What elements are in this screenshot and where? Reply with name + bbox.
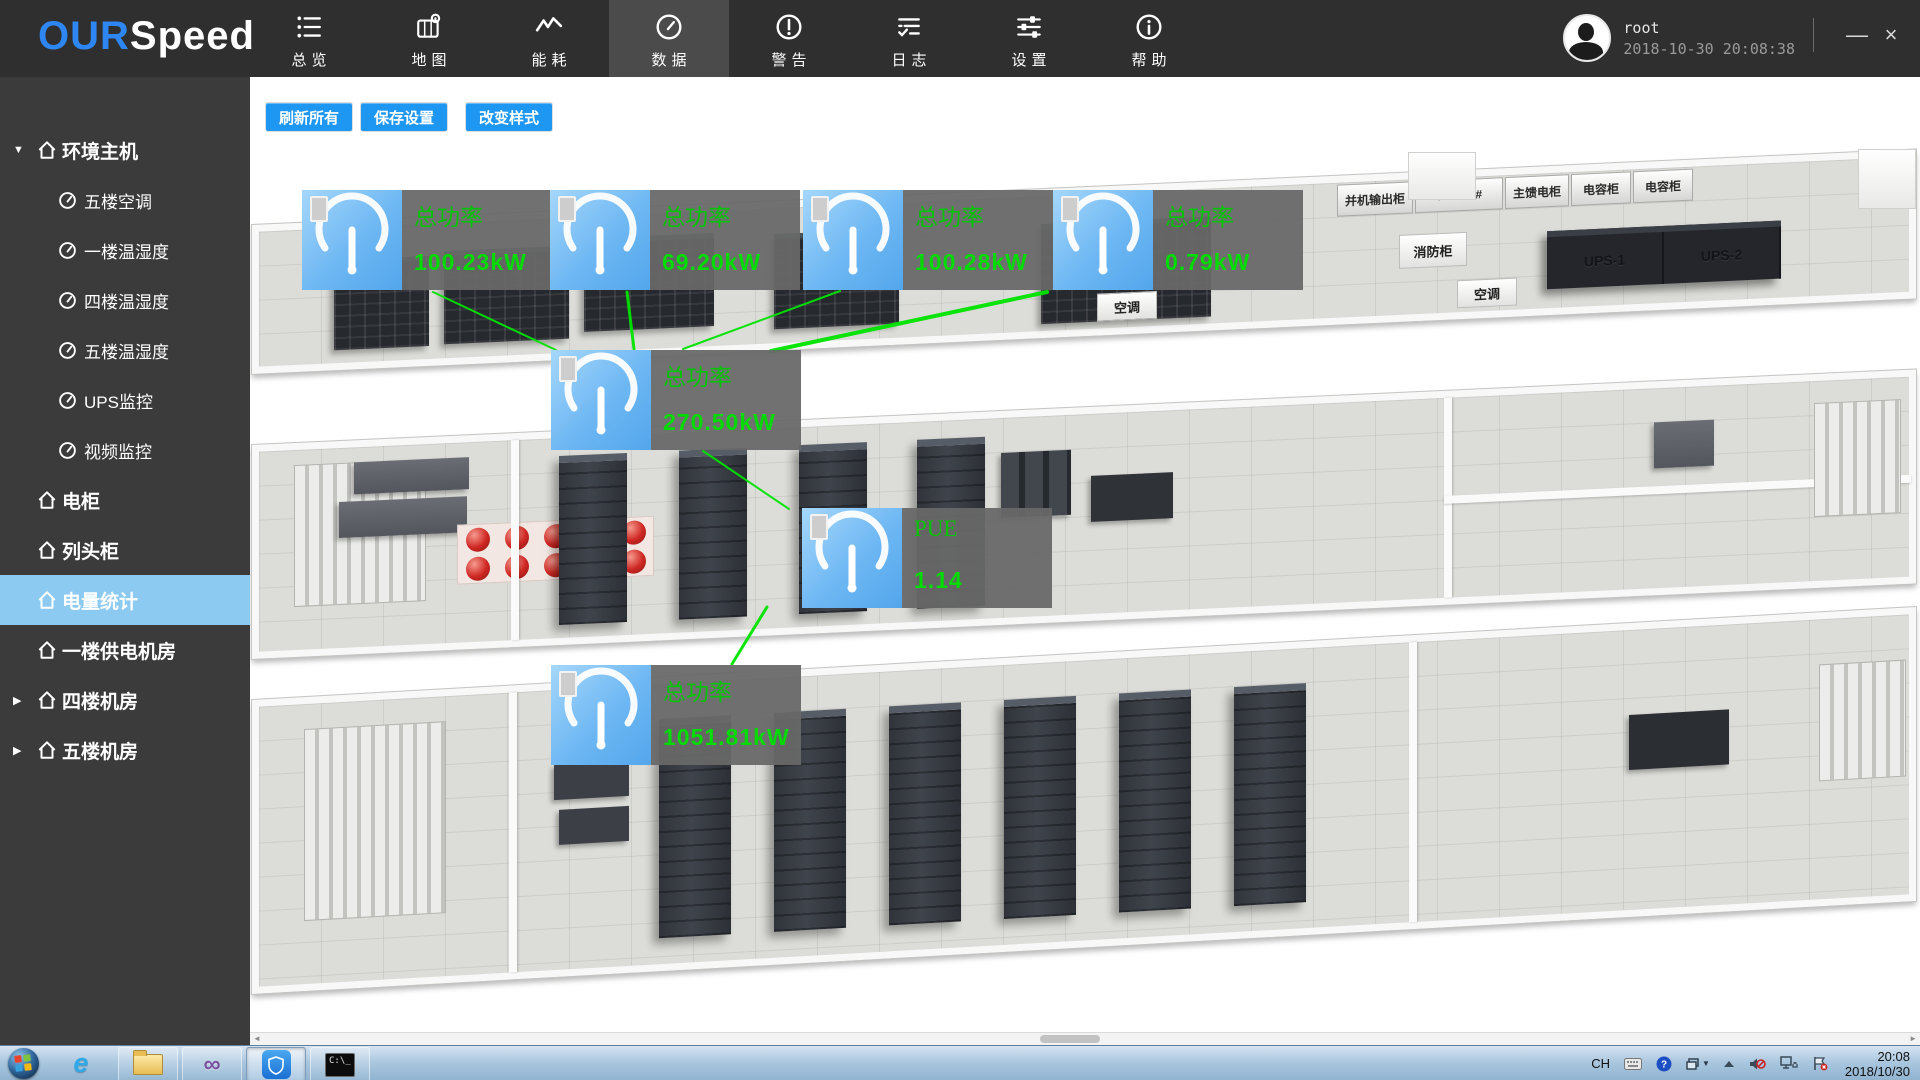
taskbar-item-file-explorer[interactable] [118,1047,178,1080]
server-rack-row [1234,683,1306,906]
internet-explorer-icon: e [73,1048,88,1079]
main-content: 刷新所有 保存设置 改变样式 并机输出柜 800A-1# 主馈电柜 电容柜 电容… [250,77,1920,1045]
action-center-flag-icon[interactable] [1812,1056,1828,1071]
scroll-left-icon[interactable]: ◄ [253,1034,261,1043]
svg-text:?: ? [1661,1059,1667,1070]
equipment-box [1629,709,1729,770]
clock-date: 2018/10/30 [1845,1064,1910,1079]
gauge-checkbox[interactable] [1061,196,1079,222]
partition-wall [1409,642,1417,922]
server-rack-row [559,453,627,625]
sidebar-item-5f-room[interactable]: ▶ 五楼机房 [0,725,250,775]
clock-time: 20:08 [1845,1049,1910,1064]
windows-logo-icon [14,1054,32,1072]
gauge-readout: 总功率 0.79kW [1153,190,1303,290]
sidebar: ▼ 环境主机 五楼空调 一楼温湿度 四楼温湿度 五楼温湿度 UPS监控 视频监控 [0,77,250,1045]
tab-label: 日志 [849,49,969,70]
windows-taskbar: e ∞ C:\_ CH ? ▼ [0,1045,1920,1080]
gauge-tile-icon [1053,190,1153,290]
alert-icon [775,13,803,41]
sidebar-item-env-host[interactable]: ▼ 环境主机 [0,125,250,175]
top-navbar: OURSpeed 总览 地图 能耗 数据 警告 日志 设置 [0,0,1920,77]
command-prompt-icon: C:\_ [325,1053,355,1077]
cabinet-label-row: 并机输出柜 800A-1# 主馈电柜 电容柜 电容柜 [1337,168,1695,216]
sidebar-item-power-cabinet[interactable]: 电柜 [0,475,250,525]
taskbar-clock[interactable]: 20:08 2018/10/30 [1845,1049,1910,1079]
sidebar-item-1f-power-room[interactable]: 一楼供电机房 [0,625,250,675]
sidebar-item-5f-ac[interactable]: 五楼空调 [0,175,250,225]
server-rack-row [679,448,747,620]
caret-right-icon[interactable]: ▶ [13,694,21,707]
wall-beam [1858,149,1916,209]
close-button[interactable]: × [1874,22,1908,48]
start-button[interactable] [8,1048,39,1079]
home-icon [36,689,58,711]
gauge-panel-total-power-5[interactable]: 总功率 270.50kW [551,350,801,450]
server-rack-row [1119,690,1191,913]
refresh-all-button[interactable]: 刷新所有 [265,102,353,132]
gauge-label: 总功率 [663,673,801,707]
system-tray: CH ? ▼ 20:08 2018/10/30 [1584,1046,1916,1080]
home-icon [36,639,58,661]
tab-help[interactable]: 帮助 [1089,0,1209,77]
sidebar-item-power-statistics[interactable]: 电量统计 [0,575,250,625]
cabinet-label: 主馈电柜 [1505,174,1569,209]
gauge-value: 270.50kW [663,409,776,436]
minimize-button[interactable]: — [1840,22,1874,48]
stairs [1814,399,1901,517]
shield-icon [262,1050,291,1079]
cabinet-label: 并机输出柜 [1337,181,1413,216]
volume-muted-icon[interactable] [1748,1056,1766,1072]
gauge-label: 总功率 [915,198,1053,232]
tab-label: 警告 [729,49,849,70]
gauge-readout: PUE 1.14 [902,508,1052,608]
equipment-box [1091,472,1173,522]
window-controls-divider [1813,18,1814,52]
gauge-readout: 总功率 100.23kW [402,190,552,290]
gauge-value: 1051.81kW [663,724,790,751]
wall-beam [1408,152,1476,200]
gauge-checkbox[interactable] [559,356,577,382]
tab-label: 总览 [249,49,369,70]
gauge-panel-total-power-3[interactable]: 总功率 100.28kW [803,190,1053,290]
network-icon[interactable] [1780,1056,1798,1071]
session-datetime: 2018-10-30 20:08:38 [1623,40,1795,58]
tab-overview[interactable]: 总览 [249,0,369,77]
partition-wall [509,692,517,972]
help-icon [1135,13,1163,41]
keyboard-icon[interactable] [1624,1058,1642,1070]
monitor-gauge-icon [58,341,77,360]
gauge-tile-icon [803,190,903,290]
floor-3-plan [252,607,1916,994]
tab-energy[interactable]: 能耗 [489,0,609,77]
taskbar-item-visual-studio[interactable]: ∞ [182,1047,242,1080]
home-icon [36,139,58,161]
gauge-value: 1.14 [914,567,963,594]
data-gauge-icon [655,13,683,41]
tab-label: 能耗 [489,49,609,70]
tab-label: 设置 [969,49,1089,70]
gauge-tile-icon [302,190,402,290]
change-style-button[interactable]: 改变样式 [465,102,553,132]
monitor-gauge-icon [58,391,77,410]
gauge-checkbox[interactable] [810,514,828,540]
gauge-label: PUE [914,516,1052,542]
folder-icon [133,1054,163,1075]
sidebar-item-1f-temp[interactable]: 一楼温湿度 [0,225,250,275]
taskbar-item-command-prompt[interactable]: C:\_ [310,1047,370,1080]
tab-logs[interactable]: 日志 [849,0,969,77]
gauge-panel-total-power-6[interactable]: 总功率 1051.81kW [551,665,801,765]
server-rack-row [1004,696,1076,919]
gauge-readout: 总功率 100.28kW [903,190,1053,290]
gauge-label: 总功率 [1165,198,1303,232]
gauge-tile-icon [551,665,651,765]
equipment-box [554,761,629,800]
cabinet-label: 电容柜 [1571,171,1631,206]
tab-label: 地图 [369,49,489,70]
stairs [1819,660,1906,782]
tab-label: 数据 [609,49,729,70]
gauge-value: 0.79kW [1165,249,1250,276]
home-icon [36,589,58,611]
overview-list-icon [295,13,323,41]
settings-icon [1015,13,1043,41]
horizontal-scrollbar[interactable]: ◄ ► [250,1032,1920,1045]
gauge-panel-total-power-2[interactable]: 总功率 69.20kW [550,190,800,290]
caret-right-icon[interactable]: ▶ [13,744,21,757]
equipment-box [354,457,469,494]
floor-2-plan [252,369,1916,659]
fire-cabinet-label: 消防柜 [1399,232,1467,269]
energy-icon [535,13,563,41]
gauge-panel-total-power-4[interactable]: 总功率 0.79kW [1053,190,1303,290]
gauge-readout: 总功率 270.50kW [651,350,801,450]
ups-cabinets: UPS-1 UPS-2 [1547,221,1781,290]
monitor-gauge-icon [58,191,77,210]
ac-sign: 空调 [1457,278,1517,309]
partition-wall [511,440,519,640]
ac-sign: 空调 [1097,291,1157,322]
taskbar-item-monitoring-app[interactable] [246,1047,306,1080]
tab-data[interactable]: 数据 [609,0,729,77]
home-icon [36,489,58,511]
restore-window-icon[interactable]: ▼ [1686,1058,1710,1070]
gauge-checkbox[interactable] [559,671,577,697]
tab-settings[interactable]: 设置 [969,0,1089,77]
user-info[interactable]: root 2018-10-30 20:08:38 [1563,12,1795,64]
gauge-label: 总功率 [662,198,800,232]
sidebar-item-ups-monitor[interactable]: UPS监控 [0,375,250,425]
home-icon [36,539,58,561]
language-indicator[interactable]: CH [1591,1056,1610,1071]
save-settings-button[interactable]: 保存设置 [360,102,448,132]
equipment-box [559,806,629,845]
tab-alerts[interactable]: 警告 [729,0,849,77]
visual-studio-icon: ∞ [203,1051,220,1079]
gauge-tile-icon [551,350,651,450]
sidebar-item-4f-temp[interactable]: 四楼温湿度 [0,275,250,325]
ups-2-label: UPS-2 [1664,227,1781,284]
tab-label: 帮助 [1089,49,1209,70]
gauge-readout: 总功率 69.20kW [650,190,800,290]
sidebar-item-row-head-cabinet[interactable]: 列头柜 [0,525,250,575]
caret-down-icon[interactable]: ▼ [13,144,24,156]
gauge-panel-pue[interactable]: PUE 1.14 [802,508,1052,608]
map-icon [415,13,443,41]
gauge-value: 100.23kW [414,249,527,276]
log-icon [895,13,923,41]
app-logo: OURSpeed [38,14,255,59]
app-window: OURSpeed 总览 地图 能耗 数据 警告 日志 设置 [0,0,1920,1080]
monitor-gauge-icon [58,441,77,460]
home-icon [36,739,58,761]
equipment-box [1654,420,1714,469]
server-rack-row [889,702,961,925]
tab-map[interactable]: 地图 [369,0,489,77]
user-avatar-icon [1563,14,1611,62]
sidebar-item-video-monitor[interactable]: 视频监控 [0,425,250,475]
taskbar-item-internet-explorer[interactable]: e [52,1047,110,1080]
ups-1-label: UPS-1 [1547,232,1664,289]
stairs [304,721,446,921]
logo-our: OUR [38,14,130,58]
gauge-label: 总功率 [414,198,552,232]
monitor-gauge-icon [58,291,77,310]
gauge-checkbox[interactable] [558,196,576,222]
gauge-readout: 总功率 1051.81kW [651,665,801,765]
gauge-tile-icon [802,508,902,608]
scrollbar-thumb[interactable] [1040,1035,1100,1043]
scroll-right-icon[interactable]: ► [1909,1034,1917,1043]
cabinet-label: 电容柜 [1633,169,1693,204]
sidebar-item-5f-temp[interactable]: 五楼温湿度 [0,325,250,375]
logo-speed: Speed [130,14,255,58]
help-tray-icon[interactable]: ? [1656,1056,1672,1072]
gauge-checkbox[interactable] [811,196,829,222]
gauge-checkbox[interactable] [310,196,328,222]
gauge-value: 69.20kW [662,249,761,276]
monitor-gauge-icon [58,241,77,260]
equipment-box [339,496,467,538]
gauge-value: 100.28kW [915,249,1028,276]
gauge-label: 总功率 [663,358,801,392]
gauge-panel-total-power-1[interactable]: 总功率 100.23kW [302,190,552,290]
show-hidden-icons[interactable] [1724,1061,1734,1067]
gauge-tile-icon [550,190,650,290]
user-name: root [1623,19,1795,37]
sidebar-item-4f-room[interactable]: ▶ 四楼机房 [0,675,250,725]
